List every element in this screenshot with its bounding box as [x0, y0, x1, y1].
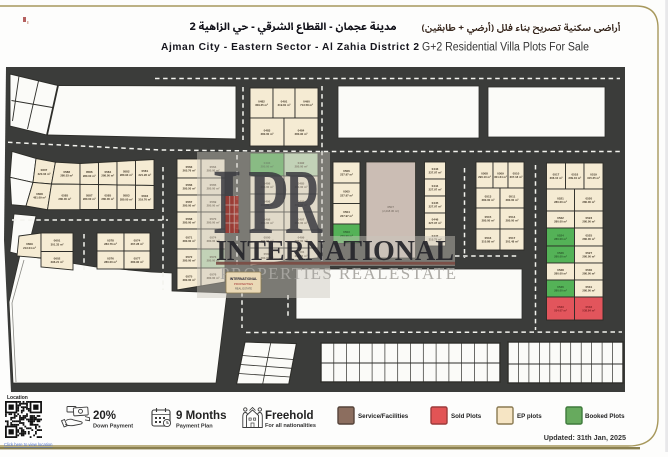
svg-text:20%: 20% — [93, 410, 116, 422]
svg-text:PROPERTIES: PROPERTIES — [234, 282, 253, 286]
svg-text:Booked Plots: Booked Plots — [585, 413, 625, 420]
svg-text:309.04 m²: 309.04 m² — [568, 176, 581, 180]
svg-text:280.00 m²: 280.00 m² — [582, 220, 595, 224]
svg-text:481.09 m²: 481.09 m² — [33, 196, 46, 200]
svg-text:310.86 m²: 310.86 m² — [482, 240, 495, 244]
svg-text:227.97 m²: 227.97 m² — [429, 205, 442, 209]
svg-text:219.81 m²: 219.81 m² — [278, 103, 291, 107]
svg-text:538.84 m²: 538.84 m² — [582, 309, 595, 313]
svg-text:280.00 m²: 280.00 m² — [582, 200, 595, 204]
svg-text:Down Payment: Down Payment — [93, 424, 133, 430]
svg-text:280.00 m²: 280.00 m² — [554, 237, 567, 241]
svg-text:227.97 m²: 227.97 m² — [429, 221, 442, 225]
svg-text:306.10 m²: 306.10 m² — [550, 176, 563, 180]
svg-text:283.76 m²: 283.76 m² — [104, 242, 117, 246]
svg-text:280.90 m²: 280.90 m² — [131, 260, 144, 264]
svg-text:321.28 m²: 321.28 m² — [138, 173, 151, 177]
svg-text:Click here to view location: Click here to view location — [4, 442, 53, 447]
svg-text:534.07 m²: 534.07 m² — [554, 309, 567, 313]
svg-text:280.00 m²: 280.00 m² — [83, 174, 96, 178]
svg-text:280.00 m²: 280.00 m² — [554, 200, 567, 204]
svg-text:REAL ESTATE: REAL ESTATE — [235, 287, 252, 291]
svg-text:280.00 m²: 280.00 m² — [554, 272, 567, 276]
svg-text:237.97 m²: 237.97 m² — [340, 173, 353, 177]
svg-text:267.28 m²: 267.28 m² — [131, 242, 144, 246]
svg-text:Ajman City - Eastern Sector -: Ajman City - Eastern Sector - Al Zahia D… — [161, 42, 419, 53]
svg-text:227.97 m²: 227.97 m² — [340, 193, 353, 197]
svg-text:280.50 m²: 280.50 m² — [183, 187, 196, 191]
svg-text:280.00 m²: 280.00 m² — [582, 272, 595, 276]
svg-text:320.03 m²: 320.03 m² — [38, 172, 51, 176]
svg-text:319.76 m²: 319.76 m² — [138, 198, 151, 202]
svg-text:280.00 m²: 280.00 m² — [582, 289, 595, 293]
svg-text:280.00 m²: 280.00 m² — [261, 132, 274, 136]
svg-text:301.33 m²: 301.33 m² — [51, 242, 64, 246]
svg-text:301.64 m²: 301.64 m² — [494, 175, 507, 179]
svg-text:280.00 m²: 280.00 m² — [506, 198, 519, 202]
svg-text:265.76 m²: 265.76 m² — [183, 169, 196, 173]
svg-text:280.00 m²: 280.00 m² — [101, 197, 114, 201]
svg-text:280.00 m²: 280.00 m² — [83, 197, 96, 201]
svg-text:713.58 m²: 713.58 m² — [300, 103, 313, 107]
svg-text:G+2 Residential Villa Plots Fo: G+2 Residential Villa Plots For Sale — [422, 42, 589, 54]
svg-text:301.48 m²: 301.48 m² — [506, 240, 519, 244]
svg-text:280.00 m²: 280.00 m² — [183, 259, 196, 263]
svg-text:EP plots: EP plots — [517, 413, 542, 420]
svg-text:237.97 m²: 237.97 m² — [429, 171, 442, 175]
svg-text:Location: Location — [7, 395, 28, 401]
svg-text:280.00 m²: 280.00 m² — [58, 197, 71, 201]
svg-text:280.00 m²: 280.00 m² — [482, 198, 495, 202]
svg-text:307.18 m²: 307.18 m² — [510, 175, 523, 179]
svg-text:280.00 m²: 280.00 m² — [554, 220, 567, 224]
svg-text:Service/Facilities: Service/Facilities — [358, 413, 409, 420]
svg-text:280.00 m²: 280.00 m² — [183, 221, 196, 225]
svg-text:280.00 m²: 280.00 m² — [554, 255, 567, 259]
svg-text:280.00 m²: 280.00 m² — [183, 278, 196, 282]
svg-text:Sold Plots: Sold Plots — [451, 413, 482, 420]
svg-text:286.00 m²: 286.00 m² — [101, 174, 114, 178]
svg-text:309.25 m²: 309.25 m² — [255, 103, 268, 107]
svg-text:213.04 m²: 213.04 m² — [23, 246, 36, 250]
svg-text:227.97 m²: 227.97 m² — [340, 214, 353, 218]
svg-text:(2,218.30 m²): (2,218.30 m²) — [382, 209, 399, 213]
svg-text:9 Months: 9 Months — [176, 410, 226, 422]
svg-text:280.00 m²: 280.00 m² — [104, 260, 117, 264]
svg-text:280.00 m²: 280.00 m² — [506, 219, 519, 223]
svg-text:INTERNATIONAL: INTERNATIONAL — [230, 277, 257, 281]
svg-text:Payment Plan: Payment Plan — [176, 424, 213, 430]
svg-text:280.00 m²: 280.00 m² — [482, 219, 495, 223]
svg-text:296.21 m²: 296.21 m² — [51, 260, 64, 264]
svg-text:280.00 m²: 280.00 m² — [554, 289, 567, 293]
svg-text:280.93 m²: 280.93 m² — [120, 173, 133, 177]
svg-text:280.00 m²: 280.00 m² — [582, 255, 595, 259]
svg-text:315.25 m²: 315.25 m² — [587, 176, 600, 180]
svg-text:296.10 m²: 296.10 m² — [478, 175, 491, 179]
svg-text:280.03 m²: 280.03 m² — [60, 174, 73, 178]
svg-text:280.00 m²: 280.00 m² — [120, 197, 133, 201]
svg-text:280.00 m²: 280.00 m² — [183, 204, 196, 208]
svg-text:280.00 m²: 280.00 m² — [183, 239, 196, 243]
svg-text:Freehold: Freehold — [265, 410, 314, 422]
svg-text:227.97 m²: 227.97 m² — [429, 188, 442, 192]
svg-text:For all nationalities: For all nationalities — [265, 423, 316, 429]
svg-text:280.90 m²: 280.90 m² — [295, 132, 308, 136]
svg-text:Updated: 31th Jan, 2025: Updated: 31th Jan, 2025 — [544, 433, 626, 442]
svg-text:280.00 m²: 280.00 m² — [582, 237, 595, 241]
